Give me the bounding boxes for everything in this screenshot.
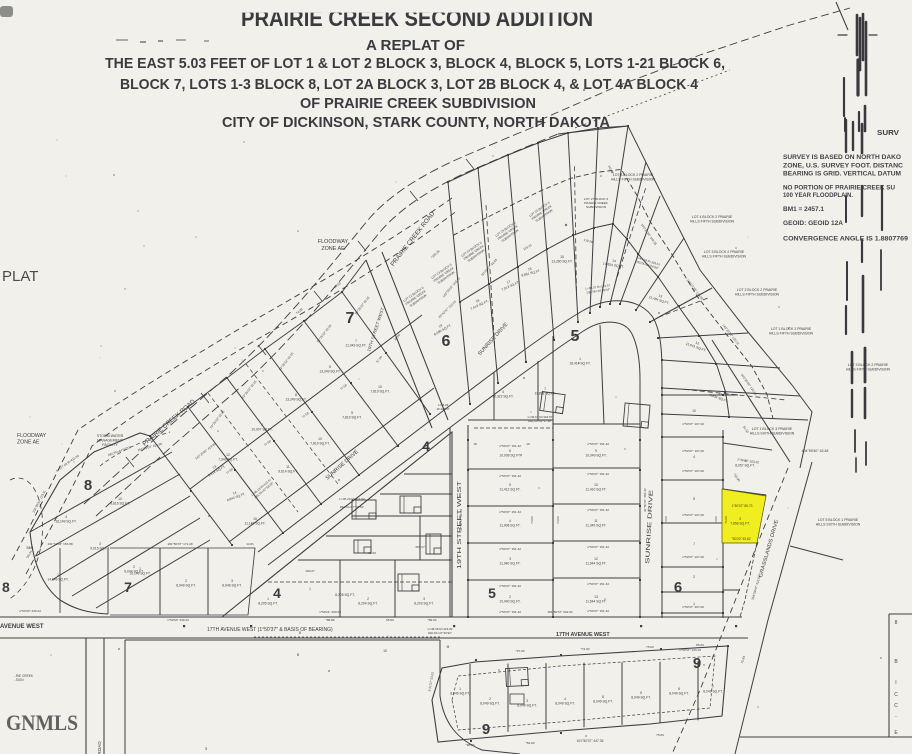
svg-text:10,049 SQ.FT.: 10,049 SQ.FT. bbox=[585, 453, 606, 457]
svg-text:4: 4 bbox=[273, 585, 281, 601]
svg-text:LOT 2 BLOCK 2 PRAIRIE: LOT 2 BLOCK 2 PRAIRIE bbox=[737, 288, 778, 292]
svg-text:17TH AVENUE WEST (1°50'37" & B: 17TH AVENUE WEST (1°50'37" & BASIS OF BE… bbox=[207, 627, 333, 633]
svg-text:13,249 SQ.FT.: 13,249 SQ.FT. bbox=[319, 369, 340, 373]
svg-text:1°50'37" 107.00: 1°50'37" 107.00 bbox=[682, 422, 704, 426]
svg-text:7,349 SQ.FT.: 7,349 SQ.FT. bbox=[218, 457, 238, 461]
svg-text:181°50'37" 171.29: 181°50'37" 171.29 bbox=[167, 542, 193, 546]
svg-text:8,205 SQ.FT.: 8,205 SQ.FT. bbox=[335, 593, 355, 597]
svg-text:PLAT: PLAT bbox=[2, 268, 38, 285]
svg-text:LOT 8 BLOCK 2 PRAIRIE: LOT 8 BLOCK 2 PRAIRIE bbox=[613, 173, 654, 177]
svg-text:HILLS FIFTH SUBDIVISION: HILLS FIFTH SUBDIVISION bbox=[611, 177, 656, 181]
svg-text:11,544 SQ.FT.: 11,544 SQ.FT. bbox=[585, 561, 606, 565]
svg-text:10,149 SQ.FT.: 10,149 SQ.FT. bbox=[129, 571, 150, 575]
svg-text:365.27: 365.27 bbox=[415, 545, 425, 549]
svg-text:1°50'37" 151.32: 1°50'37" 151.32 bbox=[499, 444, 521, 448]
svg-text:11,349 SQ.FT.: 11,349 SQ.FT. bbox=[585, 523, 606, 527]
svg-text:HILLS FIFTH SUBDIVISION: HILLS FIFTH SUBDIVISION bbox=[702, 254, 747, 258]
svg-text:161°31'03" 153.88: 161°31'03" 153.88 bbox=[47, 542, 73, 546]
svg-text:BLOCK 7, LOTS 1-3 BLOCK 8, LO: BLOCK 7, LOTS 1-3 BLOCK 8, LOT 2A BLOCK … bbox=[120, 76, 699, 93]
svg-text:1°50'03" 230.22: 1°50'03" 230.22 bbox=[19, 609, 41, 613]
svg-text:10,322 SQ.FT.: 10,322 SQ.FT. bbox=[492, 394, 513, 398]
svg-text:404°59'40" 43.48: 404°59'40" 43.48 bbox=[802, 449, 829, 453]
svg-text:FLOODWAY: FLOODWAY bbox=[17, 433, 47, 439]
svg-text:7,858 SQ.FT.: 7,858 SQ.FT. bbox=[730, 521, 750, 525]
svg-text:9: 9 bbox=[482, 721, 490, 738]
svg-text:7,819 SQ.FT.: 7,819 SQ.FT. bbox=[310, 441, 330, 445]
svg-text:10: 10 bbox=[526, 442, 530, 446]
svg-text:11,008 SQ.FT.: 11,008 SQ.FT. bbox=[499, 523, 520, 527]
svg-text:BM1 = 2457.1: BM1 = 2457.1 bbox=[783, 207, 825, 213]
svg-text:8,204 SQ.FT.: 8,204 SQ.FT. bbox=[358, 601, 378, 605]
svg-text:LOT 1 BLOCK 3 PRAIRIE: LOT 1 BLOCK 3 PRAIRIE bbox=[752, 427, 793, 431]
svg-text:8,203 SQ.FT.: 8,203 SQ.FT. bbox=[414, 601, 434, 605]
svg-text:1°50'37" 151.32: 1°50'37" 151.32 bbox=[499, 584, 521, 588]
svg-text:*89.00: *89.00 bbox=[428, 618, 437, 622]
svg-text:74.00: 74.00 bbox=[664, 516, 668, 524]
svg-text:4: 4 bbox=[693, 455, 695, 459]
svg-text:8: 8 bbox=[895, 620, 898, 626]
svg-text:1°50'37" 151.32: 1°50'37" 151.32 bbox=[587, 508, 609, 512]
svg-text:14.81: 14.81 bbox=[246, 542, 254, 546]
svg-text:*98.89: *98.89 bbox=[326, 618, 335, 622]
svg-text:11,149 SQ.FT.: 11,149 SQ.FT. bbox=[244, 521, 265, 525]
svg-text:GNMLS: GNMLS bbox=[6, 710, 78, 735]
svg-text:10,040 SQ.FT.: 10,040 SQ.FT. bbox=[499, 599, 520, 603]
svg-text:8,049 SQ.FT.: 8,049 SQ.FT. bbox=[631, 695, 651, 699]
svg-text:91°50'37" 482.42: 91°50'37" 482.42 bbox=[643, 488, 647, 512]
svg-text:AVENUE WEST: AVENUE WEST bbox=[0, 624, 44, 630]
svg-text:11,043 SQ.FT.: 11,043 SQ.FT. bbox=[345, 343, 366, 347]
svg-text:8,205 SQ.FT.: 8,205 SQ.FT. bbox=[258, 601, 278, 605]
svg-text:B: B bbox=[299, 631, 301, 635]
svg-text:R=103.57: R=103.57 bbox=[437, 407, 450, 411]
svg-text:14,149 SQ.FT.: 14,149 SQ.FT. bbox=[47, 577, 68, 581]
svg-text:18: 18 bbox=[473, 442, 477, 446]
svg-text:1°50'37" 151.32: 1°50'37" 151.32 bbox=[587, 582, 609, 586]
svg-text:LOT 3 BLOCK 2 PRAIRIE: LOT 3 BLOCK 2 PRAIRIE bbox=[848, 363, 889, 367]
svg-text:1°50'37" 151.32: 1°50'37" 151.32 bbox=[499, 547, 521, 551]
svg-text:1°50'37" 107.00: 1°50'37" 107.00 bbox=[682, 469, 704, 473]
svg-text:LOT 3 BLOCK 2 PRAIRIE: LOT 3 BLOCK 2 PRAIRIE bbox=[704, 250, 745, 254]
svg-text:9,015 SQ.FT.: 9,015 SQ.FT. bbox=[90, 546, 110, 550]
svg-text:1°50'03" 230.22: 1°50'03" 230.22 bbox=[167, 618, 189, 622]
svg-text:LOT 5 BLOCK 1 PRAIRIE: LOT 5 BLOCK 1 PRAIRIE bbox=[818, 518, 859, 522]
svg-text:9,614 SQ.FT.: 9,614 SQ.FT. bbox=[278, 469, 298, 473]
svg-text:7: 7 bbox=[693, 542, 695, 546]
svg-text:100.27: 100.27 bbox=[305, 569, 315, 573]
svg-text:17TH AVENUE WEST: 17TH AVENUE WEST bbox=[556, 632, 610, 638]
svg-text:2: 2 bbox=[693, 575, 695, 579]
svg-text:1°50'37" 151.32: 1°50'37" 151.32 bbox=[499, 474, 521, 478]
svg-text:7,819 SQ.FT.: 7,819 SQ.FT. bbox=[342, 415, 362, 419]
svg-text:HILLS FIFTH SUBDIVISION: HILLS FIFTH SUBDIVISION bbox=[690, 219, 735, 223]
svg-text:1°50'37" 151.32: 1°50'37" 151.32 bbox=[587, 545, 609, 549]
svg-text:7,819 SQ.FT.: 7,819 SQ.FT. bbox=[370, 389, 390, 393]
svg-text:101°50'37" 447.35: 101°50'37" 447.35 bbox=[577, 739, 604, 743]
svg-text:100 YEAR FLOODPLAIN.: 100 YEAR FLOODPLAIN. bbox=[783, 193, 853, 199]
svg-text:1°50'37" 107.00: 1°50'37" 107.00 bbox=[682, 605, 704, 609]
svg-text:4: 4 bbox=[422, 438, 430, 454]
svg-text:1°50'21" 200.60: 1°50'21" 200.60 bbox=[319, 610, 341, 614]
svg-text:I: I bbox=[895, 680, 896, 686]
svg-text:8,049 SQ.FT.: 8,049 SQ.FT. bbox=[703, 689, 723, 693]
svg-text:13,260 SQ.FT.: 13,260 SQ.FT. bbox=[551, 259, 572, 263]
svg-text:10,007 SQ.FT.: 10,007 SQ.FT. bbox=[251, 427, 272, 431]
svg-text:8,946 SQ.FT.: 8,946 SQ.FT. bbox=[222, 583, 242, 587]
svg-text:ZONE AE: ZONE AE bbox=[321, 246, 345, 252]
svg-text:85.00: 85.00 bbox=[696, 643, 704, 647]
svg-text:M: M bbox=[447, 645, 450, 649]
svg-text:HILLS FIFTH SUBDIVISION: HILLS FIFTH SUBDIVISION bbox=[846, 367, 891, 371]
svg-text:ZONE AE: ZONE AE bbox=[17, 440, 40, 446]
svg-text:16,149 SQ.FT.: 16,149 SQ.FT. bbox=[55, 519, 76, 523]
svg-text:75.00: 75.00 bbox=[656, 733, 664, 737]
svg-text:1°50'37" 151.32: 1°50'37" 151.32 bbox=[499, 610, 521, 614]
svg-text:HILLS FIFTH SUBDIVISION: HILLS FIFTH SUBDIVISION bbox=[735, 292, 780, 296]
svg-text:6: 6 bbox=[674, 579, 682, 596]
svg-text:LOT 4 BLOCK 2 PRAIRIE: LOT 4 BLOCK 2 PRAIRIE bbox=[692, 215, 733, 219]
svg-text:11,544 SQ.FT.: 11,544 SQ.FT. bbox=[585, 599, 606, 603]
svg-text:CITY OF DICKINSON, STARK COUNT: CITY OF DICKINSON, STARK COUNTY, NORTH D… bbox=[222, 114, 610, 131]
svg-text:8,049 SQ.FT.: 8,049 SQ.FT. bbox=[669, 691, 689, 695]
svg-text:1°50'37" 107.00: 1°50'37" 107.00 bbox=[682, 513, 704, 517]
svg-text:10,008 SQ.FT.: 10,008 SQ.FT. bbox=[499, 453, 520, 457]
svg-text:STORM WATER: STORM WATER bbox=[97, 434, 124, 438]
svg-text:10: 10 bbox=[692, 409, 696, 413]
svg-text:11,412 SQ.FT.: 11,412 SQ.FT. bbox=[499, 487, 520, 491]
svg-text:MANAGEMENT: MANAGEMENT bbox=[97, 439, 124, 443]
svg-text:5: 5 bbox=[571, 328, 580, 345]
svg-text:*97.00: *97.00 bbox=[516, 649, 525, 653]
svg-text:..SION: ..SION bbox=[14, 678, 24, 682]
svg-text:OF PRAIRIE CREEK SUBDIVISION: OF PRAIRIE CREEK SUBDIVISION bbox=[300, 95, 536, 112]
svg-text:FLOODWAY: FLOODWAY bbox=[318, 239, 349, 245]
svg-text:C: C bbox=[894, 692, 898, 698]
svg-text:1°50'37" 107.00: 1°50'37" 107.00 bbox=[682, 449, 704, 453]
svg-text:91°50'37" 62.48: 91°50'37" 62.48 bbox=[459, 509, 463, 531]
svg-text:1°50'37" 107.00: 1°50'37" 107.00 bbox=[682, 555, 704, 559]
svg-text:SURV: SURV bbox=[877, 128, 899, 137]
svg-text:8,049 SQ.FT.: 8,049 SQ.FT. bbox=[480, 701, 500, 705]
svg-text:8,949 SQ.FT.: 8,949 SQ.FT. bbox=[176, 583, 196, 587]
svg-text:*84.00: *84.00 bbox=[526, 741, 535, 745]
svg-text:*72.00: *72.00 bbox=[581, 647, 590, 651]
svg-text:DELTA=47°30'32": DELTA=47°30'32" bbox=[428, 631, 452, 635]
svg-text:HILLS SIXTH SUBDIVISION: HILLS SIXTH SUBDIVISION bbox=[816, 522, 861, 526]
svg-text:1°50'37" 85.73: 1°50'37" 85.73 bbox=[732, 504, 753, 508]
svg-text:65.00: 65.00 bbox=[386, 618, 394, 622]
svg-text:A REPLAT OF: A REPLAT OF bbox=[366, 37, 465, 54]
svg-text:6: 6 bbox=[442, 333, 451, 350]
svg-text:8,049 SQ.FT.: 8,049 SQ.FT. bbox=[555, 701, 575, 705]
svg-text:5: 5 bbox=[488, 585, 496, 601]
svg-text:8: 8 bbox=[693, 497, 695, 501]
svg-text:9,616 SQ.FT.: 9,616 SQ.FT. bbox=[110, 501, 130, 505]
svg-text:18,414 SQ.FT.: 18,414 SQ.FT. bbox=[569, 361, 590, 365]
svg-text:11,410 SQ.FT.: 11,410 SQ.FT. bbox=[585, 487, 606, 491]
svg-text:74.00: 74.00 bbox=[530, 516, 534, 524]
svg-text:GEOID: GEOID 12A: GEOID: GEOID 12A bbox=[783, 221, 844, 227]
svg-text:74.00: 74.00 bbox=[556, 516, 560, 524]
svg-text:SURVEY IS BASED ON NORTH DAKO: SURVEY IS BASED ON NORTH DAKO bbox=[783, 155, 901, 161]
svg-text:8,057 SQ.FT.: 8,057 SQ.FT. bbox=[735, 463, 755, 467]
svg-text:SUBDIVISION: SUBDIVISION bbox=[586, 205, 606, 209]
svg-text:CONVERGENCE ANGLE IS 1.8807769: CONVERGENCE ANGLE IS 1.8807769 bbox=[783, 237, 909, 243]
svg-text:8: 8 bbox=[84, 477, 92, 494]
svg-text:8,049 SQ.FT.: 8,049 SQ.FT. bbox=[593, 699, 613, 703]
svg-text:8,049 SQ.FT.: 8,049 SQ.FT. bbox=[450, 691, 470, 695]
svg-text:ROAD: ROAD bbox=[97, 741, 102, 754]
svg-text:75.00: 75.00 bbox=[646, 645, 654, 649]
svg-text:1°50'37" 151.32: 1°50'37" 151.32 bbox=[587, 609, 609, 613]
svg-text:LOT 1 BLOCK 2 PRAIRIE: LOT 1 BLOCK 2 PRAIRIE bbox=[771, 327, 812, 331]
svg-text:HILLS FIFTH SUBDIVISION: HILLS FIFTH SUBDIVISION bbox=[769, 331, 814, 335]
svg-text:THE EAST 5.03 FEET OF LOT 1 &: THE EAST 5.03 FEET OF LOT 1 & LOT 2 BLOC… bbox=[105, 55, 725, 72]
svg-text:10: 10 bbox=[383, 649, 387, 653]
svg-text:1°50'37" 151.32: 1°50'37" 151.32 bbox=[587, 442, 609, 446]
svg-text:1: 1 bbox=[309, 587, 311, 591]
svg-text:NO PORTION OF PRAIRIE CREEK SU: NO PORTION OF PRAIRIE CREEK SU bbox=[783, 186, 895, 192]
svg-text:BEARING IS GRID. VERTICAL DAT: BEARING IS GRID. VERTICAL DATUM bbox=[783, 172, 901, 178]
svg-text:ZONE, U.S. SURVEY FOOT. DISTAN: ZONE, U.S. SURVEY FOOT. DISTANC bbox=[783, 164, 904, 170]
svg-text:1°50'37" 151.32: 1°50'37" 151.32 bbox=[587, 472, 609, 476]
svg-text:1°50'37" 151.32: 1°50'37" 151.32 bbox=[499, 510, 521, 514]
svg-text:C: C bbox=[894, 703, 898, 709]
svg-text:°50'20" 93.62: °50'20" 93.62 bbox=[732, 537, 751, 541]
svg-text:11,040 SQ.FT.: 11,040 SQ.FT. bbox=[499, 561, 520, 565]
svg-text:13,249 SQ.FT.: 13,249 SQ.FT. bbox=[285, 397, 306, 401]
svg-text:7: 7 bbox=[124, 579, 132, 595]
svg-text:74.00: 74.00 bbox=[714, 516, 718, 524]
svg-text:9: 9 bbox=[693, 655, 701, 672]
svg-text:181°50'37" 202.64: 181°50'37" 202.64 bbox=[547, 610, 573, 614]
svg-text:74.00: 74.00 bbox=[724, 516, 728, 524]
svg-text:8: 8 bbox=[2, 579, 10, 595]
